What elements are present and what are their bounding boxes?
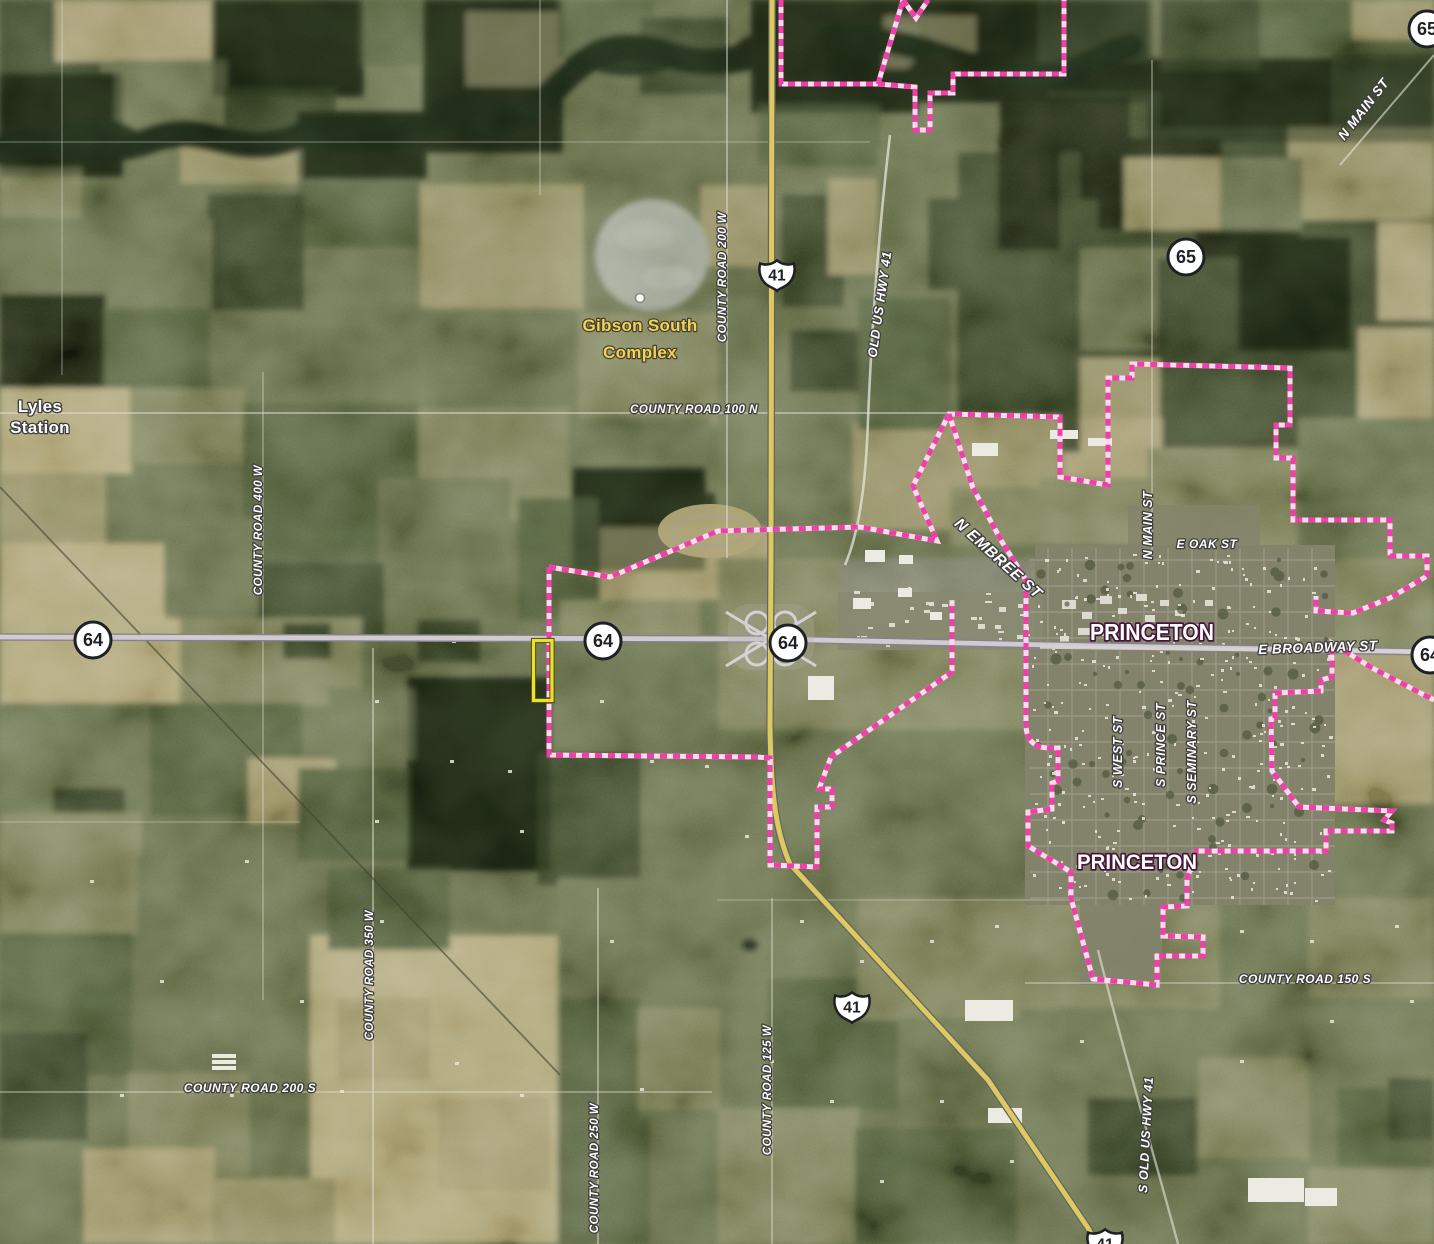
svg-text:PRINCETON: PRINCETON [1090,619,1214,645]
svg-text:E OAK ST: E OAK ST [1177,537,1239,551]
svg-text:Gibson South: Gibson South [582,316,697,335]
svg-text:S WEST ST: S WEST ST [1111,715,1125,788]
svg-text:Station: Station [10,418,70,437]
svg-text:N MAIN ST: N MAIN ST [1141,490,1155,559]
svg-text:41: 41 [768,267,786,284]
svg-text:Complex: Complex [603,343,677,362]
svg-text:COUNTY ROAD 150 S: COUNTY ROAD 150 S [1239,972,1371,986]
svg-text:41: 41 [1096,1236,1114,1244]
svg-text:COUNTY ROAD 250 W: COUNTY ROAD 250 W [589,1102,601,1233]
svg-text:41: 41 [843,999,861,1016]
svg-text:COUNTY ROAD 400 W: COUNTY ROAD 400 W [253,464,265,595]
svg-text:65: 65 [1176,247,1196,267]
svg-text:S PRINCE ST: S PRINCE ST [1154,702,1168,787]
svg-text:S SEMINARY ST: S SEMINARY ST [1185,700,1199,804]
svg-text:64: 64 [778,633,798,653]
svg-text:COUNTY ROAD 125 W: COUNTY ROAD 125 W [762,1024,774,1155]
svg-text:COUNTY ROAD 350 W: COUNTY ROAD 350 W [364,909,376,1040]
svg-text:COUNTY ROAD 200 W: COUNTY ROAD 200 W [717,211,729,342]
svg-text:COUNTY ROAD 100 N: COUNTY ROAD 100 N [630,404,758,416]
svg-text:PRINCETON: PRINCETON [1077,851,1197,874]
svg-text:Lyles: Lyles [18,397,62,416]
svg-text:65: 65 [1417,19,1434,39]
svg-text:COUNTY ROAD 200 S: COUNTY ROAD 200 S [184,1081,316,1095]
svg-text:64: 64 [1420,645,1434,665]
svg-text:64: 64 [83,630,103,650]
svg-text:64: 64 [593,631,613,651]
